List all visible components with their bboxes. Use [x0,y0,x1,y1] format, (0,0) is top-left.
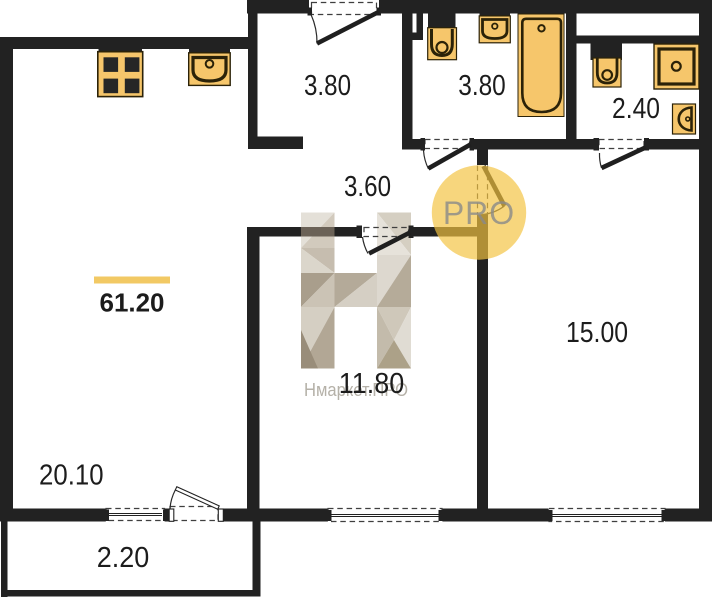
svg-text:3.80: 3.80 [304,70,351,102]
svg-text:61.20: 61.20 [100,288,165,318]
svg-text:15.00: 15.00 [566,317,628,349]
svg-text:3.80: 3.80 [458,70,506,102]
svg-text:3.60: 3.60 [344,171,391,203]
svg-text:20.10: 20.10 [39,460,104,492]
svg-text:PRO: PRO [443,195,515,231]
svg-text:2.20: 2.20 [97,542,150,574]
svg-text:11.80: 11.80 [339,368,405,400]
svg-text:2.40: 2.40 [612,93,660,125]
